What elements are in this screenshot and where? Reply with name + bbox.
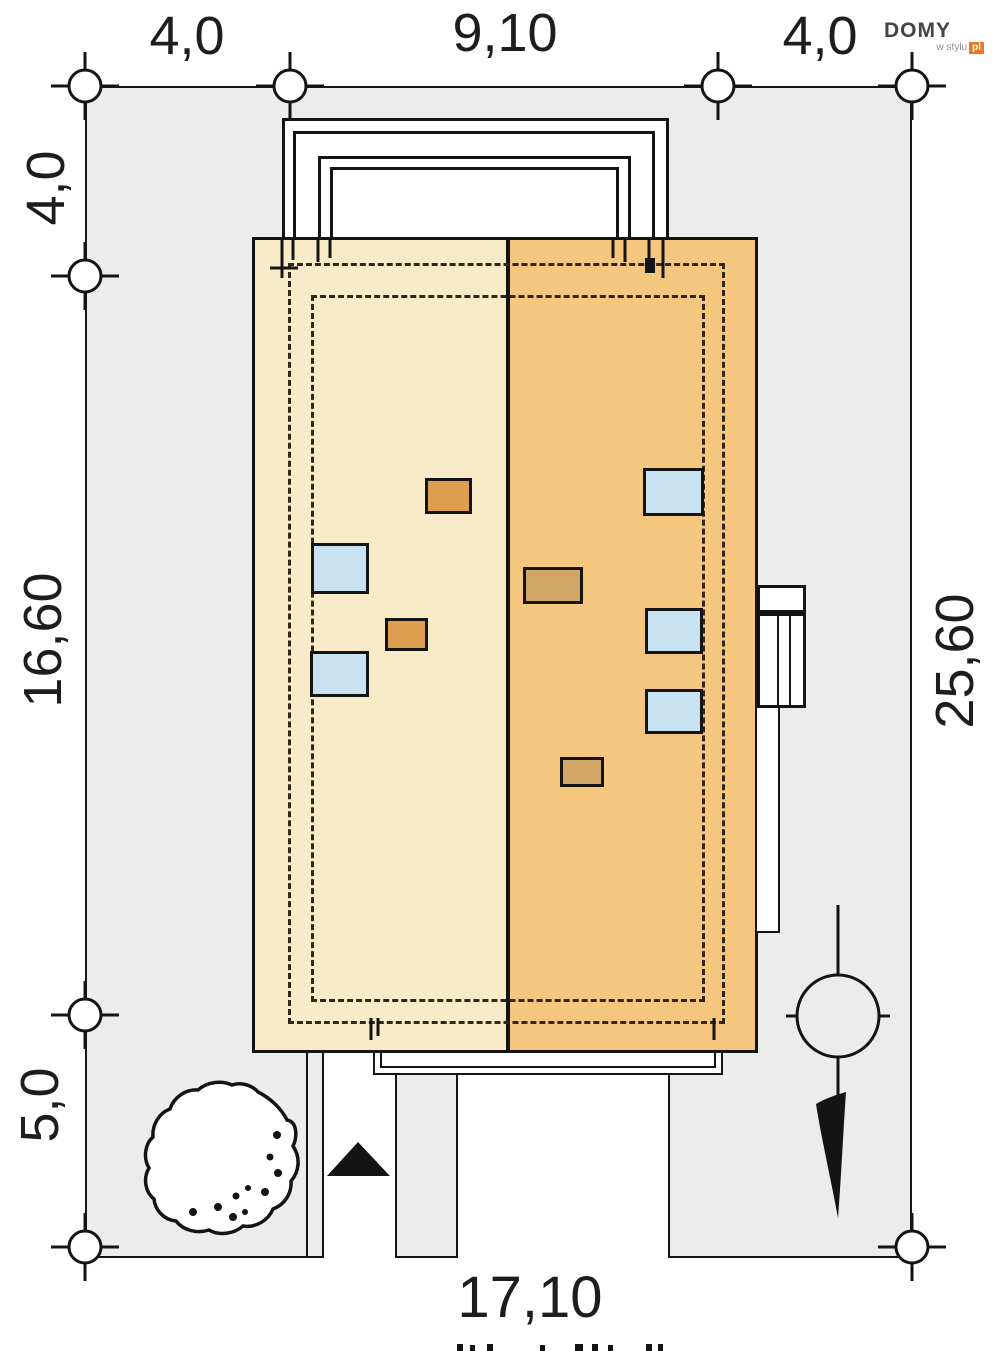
dim-label-right-side: 25,60 xyxy=(927,551,983,771)
guy-anchor-symbol xyxy=(816,1092,846,1218)
dimension-node xyxy=(684,52,752,120)
dimension-node xyxy=(256,52,324,120)
logo-brand: DOMY xyxy=(884,20,984,41)
logo: DOMY w stylupl xyxy=(884,20,984,54)
dim-label-top-center: 9,10 xyxy=(400,5,610,61)
dimension-node xyxy=(878,1213,946,1281)
dim-label-bottom: 17,10 xyxy=(420,1270,640,1326)
utility-pole-circle xyxy=(797,975,879,1057)
site-plan-canvas: 4,0 9,10 4,0 4,0 16,60 5,0 25,60 17,10 D… xyxy=(0,0,995,1351)
lineart-overlay xyxy=(0,0,995,1351)
dim-label-left-bottom: 5,0 xyxy=(12,1045,68,1165)
dimension-node xyxy=(51,242,119,310)
entrance-arrow xyxy=(327,1142,390,1176)
dim-label-top-right: 4,0 xyxy=(750,8,890,64)
dimension-node xyxy=(51,1213,119,1281)
dimension-node xyxy=(51,981,119,1049)
logo-subtitle-text: w stylu xyxy=(937,42,968,53)
dim-label-left-top: 4,0 xyxy=(18,128,74,248)
logo-tld: pl xyxy=(969,42,984,54)
tree-symbol xyxy=(146,1082,299,1233)
logo-subtitle: w stylupl xyxy=(884,42,984,54)
dim-label-left-middle: 16,60 xyxy=(15,530,71,750)
cropped-text-marks xyxy=(457,1344,663,1351)
ridge-mark xyxy=(645,258,655,273)
dimension-node xyxy=(51,52,119,120)
dim-label-top-left: 4,0 xyxy=(117,8,257,64)
